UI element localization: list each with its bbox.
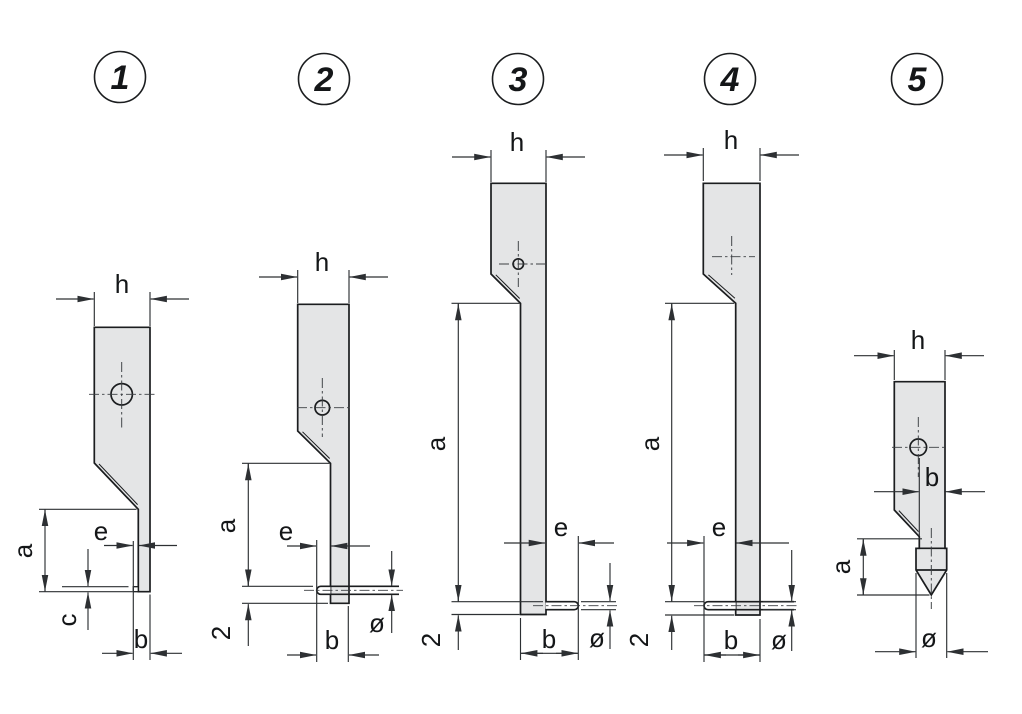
dim-label-e: e <box>712 512 726 542</box>
dim-label-b: b <box>542 624 556 654</box>
figure-5-callout: 5 <box>892 54 943 105</box>
dim-label-a: a <box>421 436 451 451</box>
dim-label-e: e <box>94 516 108 546</box>
dim-label-2: 2 <box>416 633 446 647</box>
figure-2-callout: 2 <box>299 54 350 105</box>
figure-4-callout: 4 <box>705 54 756 105</box>
dim-label-b: b <box>325 625 339 655</box>
technical-drawing-page: 1 h a e <box>0 0 1022 714</box>
dim-label-dia: ø <box>589 623 605 653</box>
dim-label-a: a <box>8 543 38 558</box>
figure-2-body <box>298 304 349 603</box>
dim-label-h: h <box>911 325 925 355</box>
dim-label-c: c <box>52 614 82 627</box>
figure-4: 4 h a 2 <box>624 54 799 663</box>
dim-label-2: 2 <box>624 633 654 647</box>
dim-label-h: h <box>510 127 524 157</box>
figure-2-number: 2 <box>314 61 334 99</box>
dim-label-a: a <box>635 436 665 451</box>
figure-3-number: 3 <box>509 61 528 99</box>
knife-profiles-drawing: 1 h a e <box>0 0 1022 714</box>
figure-2: 2 h a 2 <box>206 54 403 663</box>
figure-1-tip-lip <box>133 587 138 592</box>
figure-5-number: 5 <box>908 61 928 99</box>
dim-label-2: 2 <box>206 626 236 640</box>
dim-label-e: e <box>554 512 568 542</box>
figure-3: 3 h a 2 <box>416 54 619 661</box>
dim-label-h: h <box>315 247 329 277</box>
figure-4-dim-a <box>665 303 734 601</box>
dim-label-b: b <box>925 462 939 492</box>
figure-1-callout: 1 <box>95 52 146 103</box>
figure-4-body <box>703 183 760 615</box>
dim-label-dia: ø <box>771 625 787 655</box>
dim-label-dia: ø <box>369 608 385 638</box>
figure-2-dim-2 <box>242 603 328 646</box>
dim-label-a: a <box>826 559 856 574</box>
dim-label-dia: ø <box>921 623 937 653</box>
dim-label-a: a <box>211 518 241 533</box>
dim-label-h: h <box>115 269 129 299</box>
figure-3-dim-2 <box>452 615 520 651</box>
dim-label-b: b <box>724 625 738 655</box>
figure-4-number: 4 <box>720 61 740 99</box>
dim-label-e: e <box>279 516 293 546</box>
dim-label-h: h <box>724 125 738 155</box>
dim-label-b: b <box>134 624 148 654</box>
figure-5: 5 h b a <box>826 54 988 659</box>
figure-3-callout: 3 <box>493 54 544 105</box>
figure-1: 1 h a e <box>8 52 189 661</box>
figure-1-number: 1 <box>111 59 130 97</box>
